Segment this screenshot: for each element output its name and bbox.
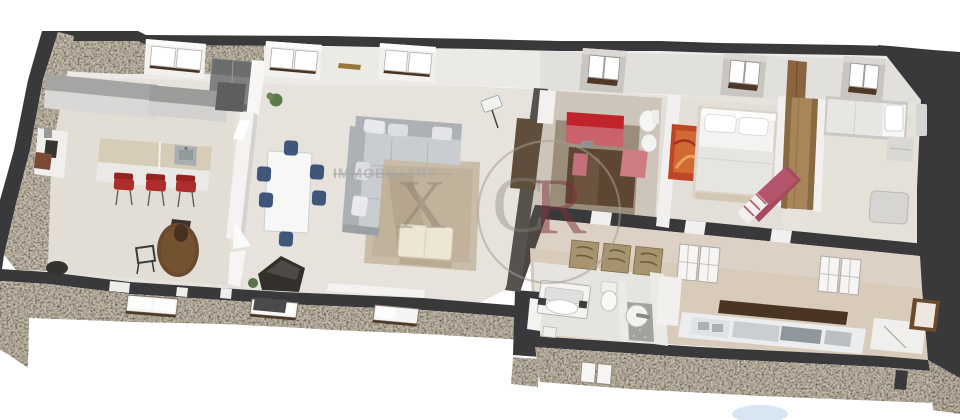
svg-text:IMMOBILIARE: IMMOBILIARE — [333, 165, 438, 181]
svg-text:R: R — [533, 163, 587, 251]
